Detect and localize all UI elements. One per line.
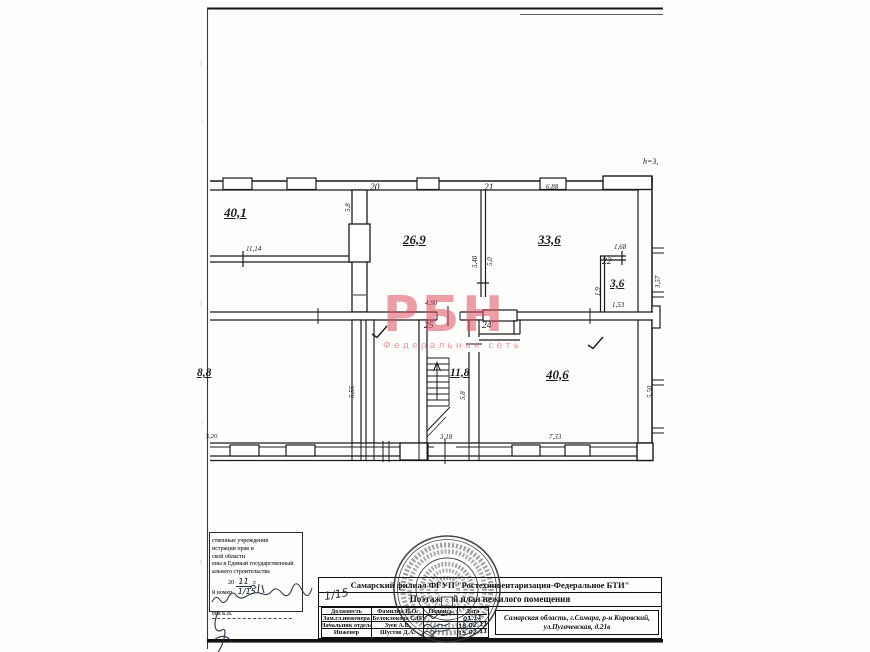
organization-name: Самарский филиал ФГУП "Ростехинвентариза…	[319, 578, 661, 593]
signature-cell	[424, 622, 458, 629]
dimension-label: 1,68	[614, 244, 626, 251]
dimension-label: 3,18	[440, 434, 452, 441]
year-prefix: 20	[228, 580, 234, 586]
room-number-label: 21	[484, 184, 494, 194]
scanned-floor-plan-page: 40,1 26,9 33,6 3,6 11,8 40,6 8,8 20 21 2…	[0, 0, 870, 652]
handwritten-date: 01.11	[463, 615, 483, 622]
signature-section: Должность Фамилия И.О. Подпись Дата Зам.…	[319, 607, 661, 638]
room-area-label: 40,1	[224, 206, 247, 219]
dimension-label: 5,55	[349, 386, 356, 398]
stamp-signed-line: ена Б.В.	[212, 611, 292, 620]
dimension-label: 5,40	[472, 256, 479, 268]
dimension-label: 6,88	[546, 184, 558, 191]
stamp-text-line: ственные учреждения	[212, 538, 302, 546]
address-line: ул.Пугачевская, д.21в	[544, 623, 611, 632]
stamp-text-line: ской области	[212, 554, 302, 562]
year-suffix: г.	[253, 580, 256, 586]
dimension-label: 5,0	[487, 257, 494, 266]
dimension-label: 11,14	[246, 246, 261, 253]
document-type: Поэтажный план нежилого помещения	[319, 593, 661, 608]
signature-cell	[424, 629, 458, 636]
position-cell: Инженер	[322, 629, 372, 636]
name-cell: Зуев А.В.	[372, 622, 424, 629]
name-cell: Шустов Д.А.	[372, 629, 424, 636]
date-cell: 01.11	[458, 615, 487, 622]
dimension-label: 5,8	[345, 203, 352, 212]
dimension-label: 5,8	[460, 391, 467, 400]
room-number-label: 22	[602, 258, 612, 268]
room-area-label: 11,8	[450, 368, 470, 380]
handwritten-number: 1/15	[234, 588, 256, 596]
agency-watermark: РБН Федеральная сеть	[383, 291, 522, 351]
stamp-year-line: 20 11 г.	[212, 578, 302, 588]
registration-stamp: ственные учреждения истрации прав и ской…	[209, 532, 303, 612]
dimension-label: 1,53	[612, 302, 624, 309]
room-area-label: 33,6	[538, 233, 561, 246]
room-area-label: 26,9	[403, 233, 426, 246]
date-cell: 18.02.11	[458, 622, 487, 629]
object-address: Самарская область, г.Самара, р-н Кировск…	[495, 610, 659, 635]
dimension-label: 7,33	[549, 434, 561, 441]
table-header: Дата	[458, 608, 487, 615]
check-mark	[588, 337, 603, 349]
stamp-number-line: й номер 1/15	[212, 588, 302, 598]
handwritten-date: 18.02.11	[458, 622, 487, 629]
table-header: Фамилия И.О.	[372, 608, 424, 615]
dimension-label: 3,57	[655, 276, 662, 288]
dimension-label: 5,50	[647, 386, 654, 398]
stairs	[427, 358, 450, 437]
watermark-subtext: Федеральная сеть	[383, 341, 522, 351]
dimension-label: 1,9	[595, 287, 602, 296]
table-header: Должность	[322, 608, 372, 615]
stamp-text-line: ального строительства	[212, 569, 302, 577]
stamp-text-line: истрации прав и	[212, 546, 302, 554]
name-cell: Белоклокова С.Н.	[372, 615, 424, 622]
position-cell: Зам.гл.инженера	[322, 615, 372, 622]
handwritten-year: 11	[236, 578, 252, 587]
dimension-label: 5,20	[206, 434, 217, 441]
room-area-label: 3,6	[610, 279, 624, 291]
stamp-text-line: ены в Единый государственный	[212, 561, 302, 569]
address-line: Самарская область, г.Самара, р-н Кировск…	[504, 614, 650, 623]
table-header: Подпись	[424, 608, 458, 615]
position-cell: Начальник отдела	[322, 622, 372, 629]
room-number-label: 20	[370, 184, 380, 194]
handwritten-date: 15.02.11	[458, 629, 487, 636]
signature-table: Должность Фамилия И.О. Подпись Дата Зам.…	[321, 607, 489, 638]
date-cell: 15.02.11	[458, 629, 487, 636]
room-area-label: 40,6	[546, 368, 569, 381]
ceiling-height-note: h=3,	[643, 158, 658, 166]
number-label: й номер	[212, 590, 232, 596]
room-area-label: 8,8	[197, 368, 211, 380]
signature-cell	[424, 615, 458, 622]
title-block: Самарский филиал ФГУП "Ростехинвентариза…	[318, 577, 662, 639]
watermark-logo-text: РБН	[383, 291, 522, 339]
